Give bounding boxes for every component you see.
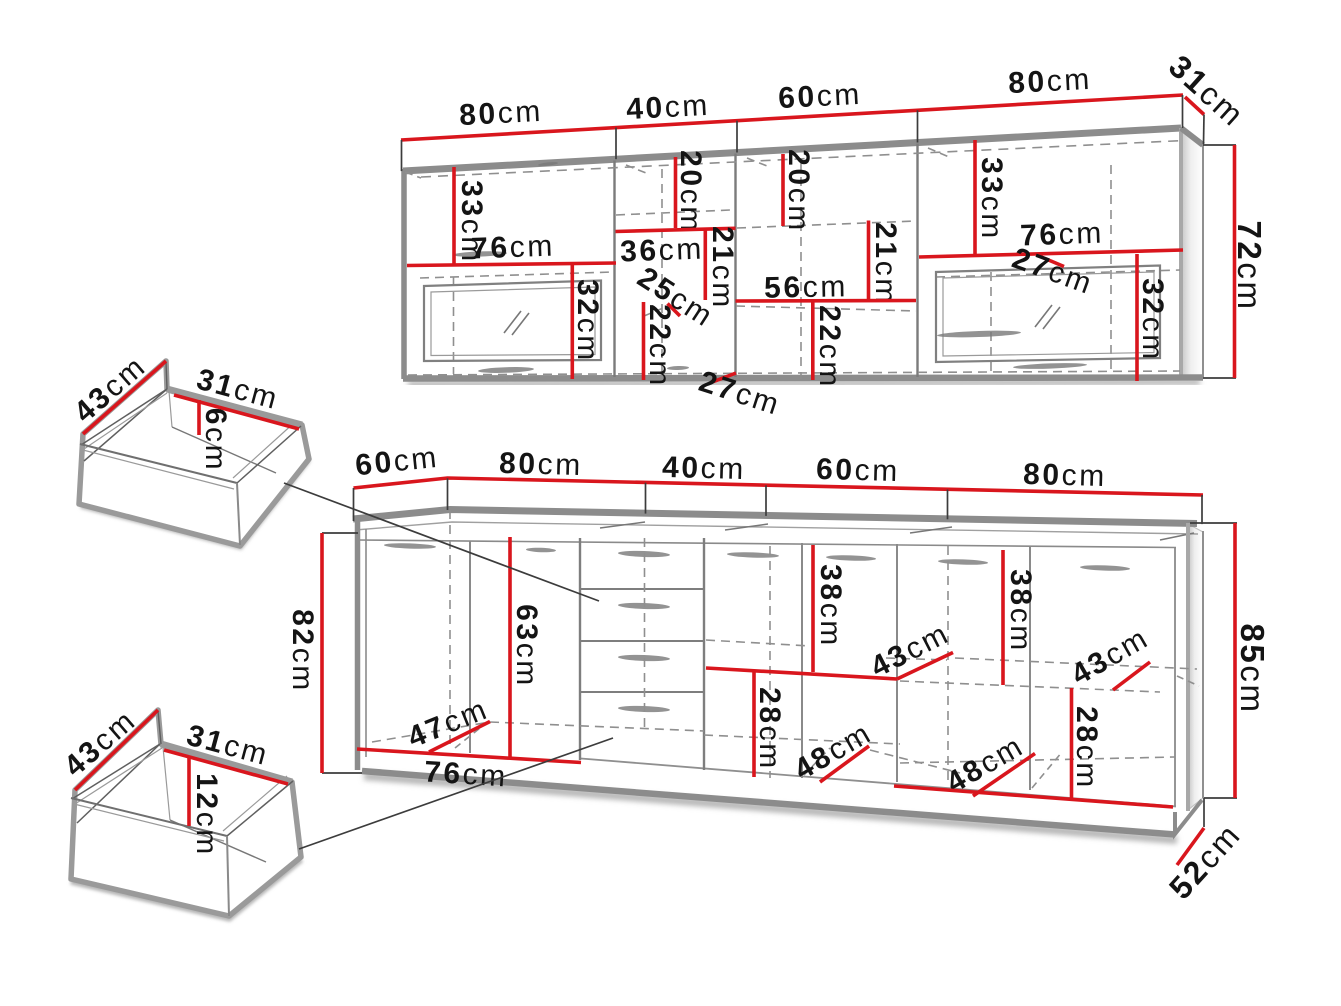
svg-text:85cm: 85cm	[1235, 623, 1272, 714]
svg-text:63cm: 63cm	[511, 604, 544, 688]
svg-text:60cm: 60cm	[777, 77, 862, 114]
svg-text:28cm: 28cm	[1071, 706, 1104, 790]
svg-text:56cm: 56cm	[764, 270, 848, 304]
svg-text:40cm: 40cm	[625, 88, 710, 125]
svg-text:22cm: 22cm	[644, 304, 677, 388]
svg-text:21cm: 21cm	[870, 222, 903, 306]
svg-text:38cm: 38cm	[1005, 569, 1038, 653]
svg-text:60cm: 60cm	[816, 452, 901, 487]
svg-text:28cm: 28cm	[754, 687, 787, 771]
svg-text:80cm: 80cm	[1007, 62, 1092, 99]
svg-text:72cm: 72cm	[1232, 220, 1269, 311]
svg-text:6cm: 6cm	[200, 408, 233, 473]
svg-text:32cm: 32cm	[1137, 278, 1170, 362]
svg-text:33cm: 33cm	[976, 157, 1009, 241]
svg-text:21cm: 21cm	[707, 226, 740, 310]
svg-text:40cm: 40cm	[662, 450, 747, 485]
svg-text:76cm: 76cm	[423, 755, 509, 793]
svg-text:20cm: 20cm	[783, 149, 816, 233]
svg-text:80cm: 80cm	[458, 94, 543, 131]
svg-text:80cm: 80cm	[499, 446, 584, 481]
svg-text:20cm: 20cm	[675, 150, 708, 234]
svg-text:76cm: 76cm	[471, 229, 556, 265]
svg-text:12cm: 12cm	[191, 773, 224, 857]
svg-text:38cm: 38cm	[815, 564, 848, 648]
svg-text:82cm: 82cm	[287, 609, 320, 693]
svg-text:80cm: 80cm	[1023, 457, 1108, 492]
svg-text:22cm: 22cm	[814, 305, 847, 389]
svg-text:36cm: 36cm	[620, 232, 705, 268]
svg-text:32cm: 32cm	[572, 279, 605, 363]
